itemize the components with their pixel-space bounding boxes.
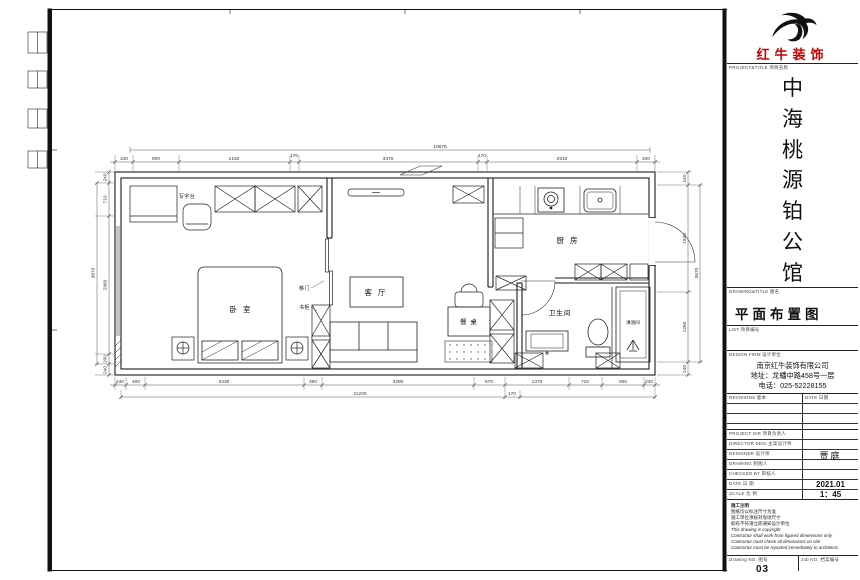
double-bed	[198, 267, 282, 363]
drawing-sheet: 卧 室 客 厅 餐 桌 厨 房 卫生间 淋浴间 写字台 移门 书柜	[0, 0, 860, 580]
svg-text:240: 240	[103, 173, 109, 181]
kitchen-sink	[584, 189, 616, 212]
drawing-title-label: DRAWING&TITLE 图名	[727, 288, 858, 296]
designer-value: 贾庭	[803, 430, 858, 480]
firm-phone: 电话：025-52228155	[727, 381, 858, 391]
shower-label: 淋浴间	[626, 319, 640, 326]
binding-strip	[28, 32, 47, 168]
desk-label: 写字台	[179, 193, 196, 200]
drawing-title-text: 平面布置图	[727, 297, 858, 323]
tv-unit	[348, 189, 404, 196]
revisions-label: REVISIONS 版本	[727, 394, 803, 403]
drawing-no-label: Drawing NO. 图号	[727, 556, 798, 564]
kitchen-label: 厨 房	[556, 235, 579, 245]
sliding-door	[326, 239, 333, 305]
project-dir-label: PROJECT DIR 项目负责人	[727, 430, 803, 439]
project-name: 中 海 桃 源 铂 公 馆	[727, 72, 858, 287]
svg-text:240: 240	[103, 366, 109, 374]
drawing-no-value: 03	[727, 564, 798, 575]
list-empty-space	[727, 335, 858, 350]
svg-text:3670: 3670	[694, 267, 700, 278]
svg-text:240: 240	[645, 379, 653, 385]
project-label-row: PROJECT&TITLE 项目名称	[727, 63, 858, 72]
dining-cabinet	[490, 276, 526, 363]
firm-label-row: DESIGN FIRM 设计单位	[727, 350, 858, 359]
top-cabinet	[453, 186, 484, 203]
revision-row	[727, 403, 858, 413]
svg-text:1930: 1930	[682, 233, 688, 244]
dining-chair	[455, 284, 483, 307]
fields-table: PROJECT DIR 项目负责人 DIRECTOR DESI 主案设计师 DE…	[727, 429, 858, 499]
dims-left-text: 240 710 2960 200 240 3870	[91, 173, 109, 374]
bookcase	[312, 305, 330, 368]
entry-door	[655, 222, 695, 262]
svg-text:900: 900	[619, 379, 627, 385]
dims-bottom-text: 240 400 3430 390 3290 670 1370 710 900 2…	[116, 379, 653, 397]
bookcase-label: 书柜	[299, 304, 310, 311]
svg-text:2150: 2150	[229, 156, 240, 162]
svg-text:390: 390	[309, 379, 317, 385]
revision-row	[727, 413, 858, 423]
rug	[445, 341, 492, 362]
number-row: Drawing NO. 图号 03 Job NO. 档案编号	[727, 555, 858, 571]
drawing-by-label: DRAWING 制图人	[727, 460, 803, 469]
sliding-door-label: 移门	[299, 285, 310, 292]
director-label: DIRECTOR DESI 主案设计师	[727, 440, 803, 449]
cooktop	[538, 188, 564, 212]
svg-text:1370: 1370	[532, 379, 543, 385]
svg-text:200: 200	[103, 355, 109, 363]
notes-block: 施工注明 图纸均以标注尺寸为准 施工单位须核对现场尺寸 如有不符请立即通知设计单…	[727, 499, 858, 555]
svg-text:240: 240	[682, 174, 688, 182]
living-label: 客 厅	[364, 287, 387, 297]
svg-text:10675: 10675	[433, 144, 447, 150]
firm-info: 南京红牛装饰有限公司 地址：龙蟠中路458号一层 电话：025-52228155	[727, 359, 858, 393]
dims-right-text: 240 1930 1260 240 3670	[682, 174, 700, 373]
dining-label: 餐 桌	[460, 317, 478, 326]
project-label: PROJECT&TITLE 项目名称	[727, 64, 858, 72]
svg-text:670: 670	[485, 379, 493, 385]
wardrobe	[215, 186, 322, 212]
svg-text:3470: 3470	[383, 156, 394, 162]
list-label-row: LIST 项目编号	[727, 325, 858, 335]
desk	[130, 186, 177, 222]
svg-text:340: 340	[642, 156, 650, 162]
svg-text:3870: 3870	[91, 267, 97, 278]
date-label: DATE 日 期	[727, 480, 803, 489]
logo-section: 红牛装饰	[727, 9, 858, 63]
drawing-title: 平面布置图	[727, 297, 858, 325]
svg-text:170: 170	[290, 153, 298, 159]
nightstand-right	[286, 337, 308, 360]
svg-text:3430: 3430	[219, 379, 230, 385]
sofa	[330, 322, 417, 362]
svg-text:1260: 1260	[682, 321, 688, 332]
dims-top-text: 10675 340 900 2150 170 3470 170 2910 340	[120, 144, 650, 162]
designer-label: DESIGNER 设计师	[727, 450, 803, 459]
job-no-label: Job NO. 档案编号	[799, 556, 858, 564]
ceiling-beam	[400, 166, 442, 175]
bathroom-label: 卫生间	[549, 308, 572, 317]
list-label: LIST 项目编号	[727, 326, 858, 334]
svg-text:400: 400	[132, 379, 140, 385]
toilet	[586, 319, 610, 357]
svg-text:170: 170	[478, 153, 486, 159]
svg-text:2960: 2960	[103, 279, 109, 290]
firm-address: 地址：龙蟠中路458号一层	[727, 371, 858, 381]
firm-name: 南京红牛装饰有限公司	[727, 361, 858, 371]
firm-label: DESIGN FIRM 设计单位	[727, 351, 858, 359]
desk-chair	[183, 204, 211, 230]
drawing-title-label-row: DRAWING&TITLE 图名	[727, 287, 858, 297]
bath-wall-cabinets	[515, 353, 620, 368]
vanity	[526, 331, 568, 355]
bedroom-label: 卧 室	[229, 304, 252, 314]
bull-swoosh-icon	[727, 9, 858, 43]
svg-text:240: 240	[116, 379, 124, 385]
svg-text:2910: 2910	[557, 156, 568, 162]
title-block: 红牛装饰 PROJECT&TITLE 项目名称 中 海 桃 源 铂 公 馆 DR…	[727, 9, 858, 571]
fridge	[495, 218, 523, 248]
svg-text:240: 240	[682, 365, 688, 373]
svg-text:11230: 11230	[354, 391, 367, 397]
kitchen-counter	[493, 186, 648, 214]
svg-text:3290: 3290	[393, 379, 404, 385]
brand-name: 红牛装饰	[727, 44, 858, 63]
nightstand-left	[172, 337, 194, 360]
revisions-date-label: DATE 日期	[803, 394, 830, 403]
svg-text:710: 710	[103, 195, 109, 203]
svg-text:170: 170	[508, 391, 516, 397]
checked-by-label: CHECKED BY 审核人	[727, 470, 803, 479]
svg-text:710: 710	[581, 379, 589, 385]
revisions-table: REVISIONS 版本 DATE 日期	[727, 393, 858, 429]
svg-text:340: 340	[120, 156, 128, 162]
svg-text:900: 900	[152, 156, 160, 162]
date-value: 2021.01	[803, 480, 858, 489]
dims-bottom	[110, 377, 660, 399]
